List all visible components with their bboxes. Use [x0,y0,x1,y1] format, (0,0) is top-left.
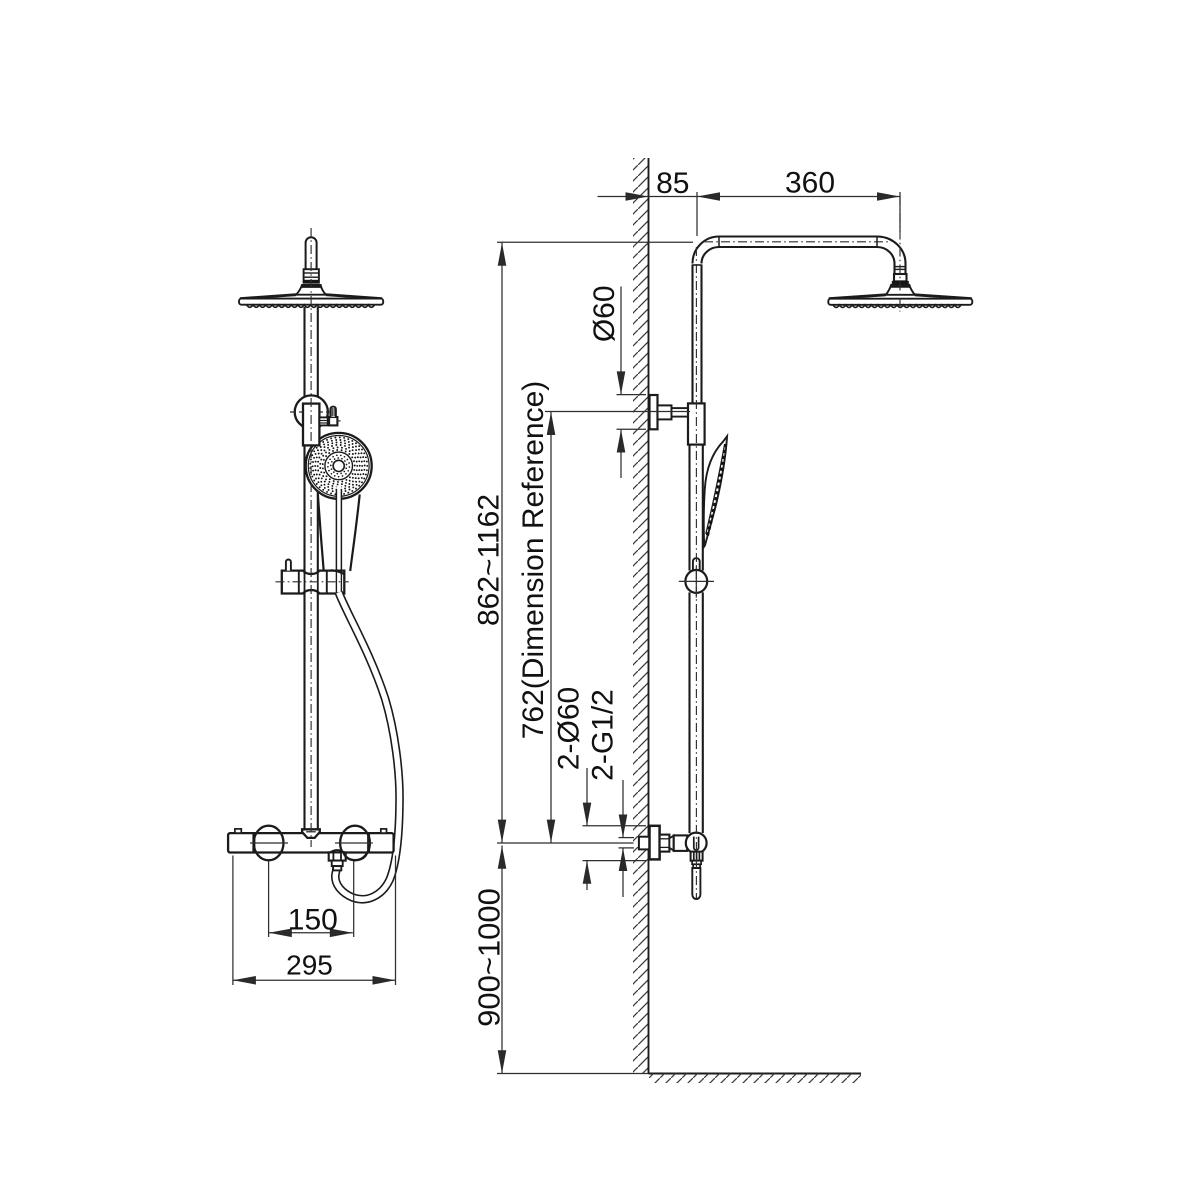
svg-text:Ø60: Ø60 [588,285,621,342]
svg-text:85: 85 [656,167,689,200]
svg-text:2-Ø60: 2-Ø60 [553,687,586,770]
svg-text:2-G1/2: 2-G1/2 [587,689,620,781]
svg-text:862~1162: 862~1162 [473,494,506,626]
svg-text:900~1000: 900~1000 [472,888,507,1027]
svg-text:360: 360 [785,167,835,200]
svg-text:150: 150 [288,904,338,937]
svg-text:762(Dimension Reference): 762(Dimension Reference) [517,381,550,740]
svg-text:295: 295 [286,950,333,981]
